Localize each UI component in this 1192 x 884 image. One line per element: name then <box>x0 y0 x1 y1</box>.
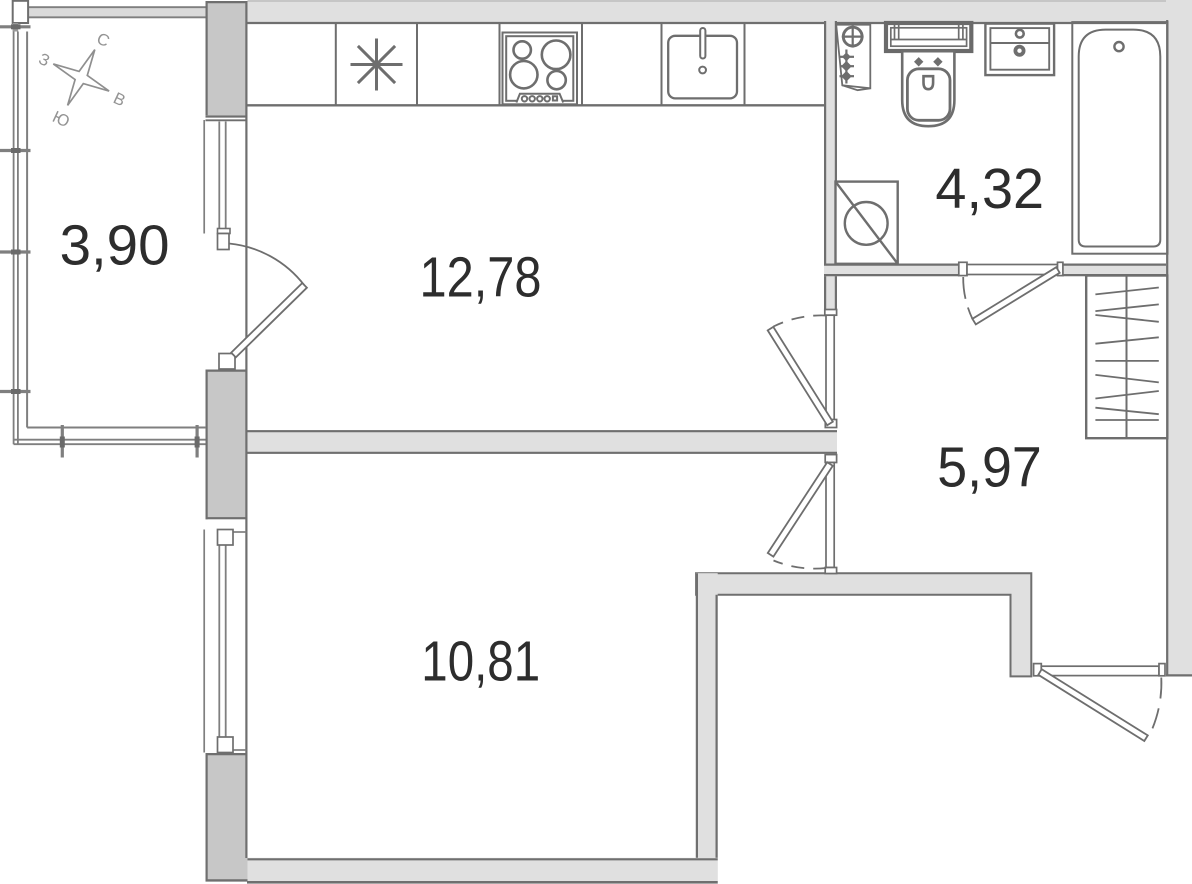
svg-text:5,97: 5,97 <box>937 435 1042 498</box>
svg-text:3,90: 3,90 <box>60 214 170 277</box>
svg-text:10,81: 10,81 <box>421 630 540 693</box>
svg-text:12,78: 12,78 <box>420 246 542 309</box>
svg-text:4,32: 4,32 <box>935 157 1044 220</box>
